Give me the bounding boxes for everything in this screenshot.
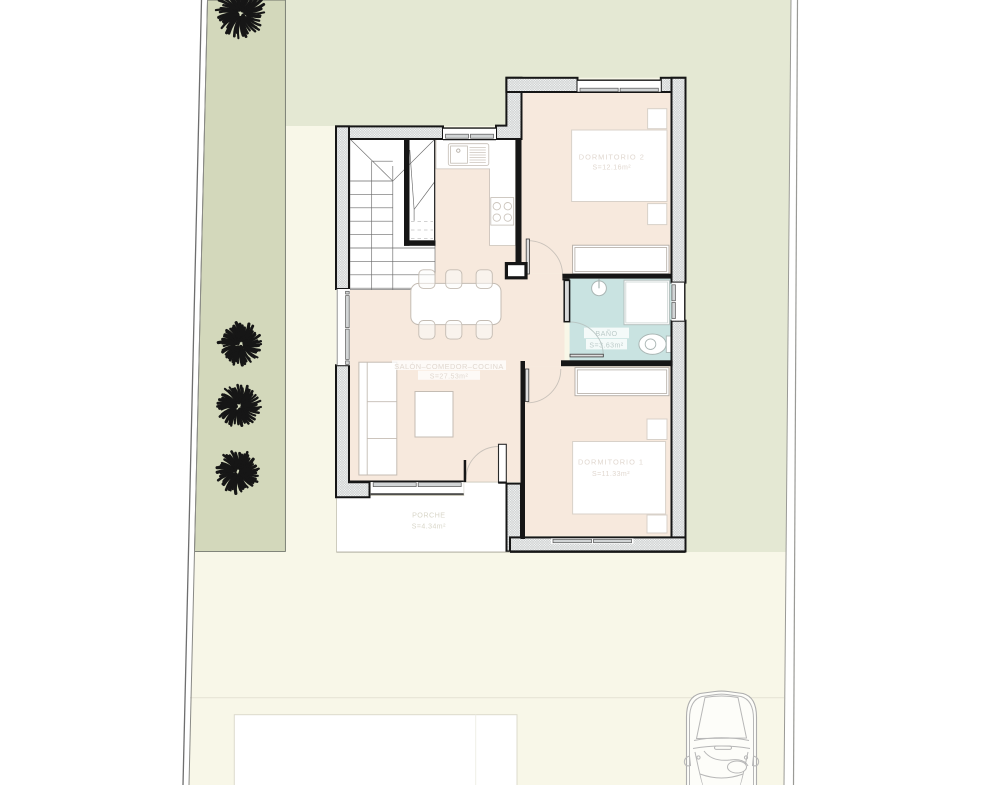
svg-text:S=4.34m²: S=4.34m² xyxy=(412,524,446,531)
svg-text:DORMITORIO 1: DORMITORIO 1 xyxy=(578,458,644,467)
svg-text:S=27.53m²: S=27.53m² xyxy=(430,374,469,381)
svg-text:S=11.33m²: S=11.33m² xyxy=(592,471,630,478)
svg-text:S=3.63m²: S=3.63m² xyxy=(589,343,623,350)
svg-text:PORCHE: PORCHE xyxy=(412,511,445,520)
svg-text:BAÑO: BAÑO xyxy=(595,329,617,338)
svg-text:S=12.16m²: S=12.16m² xyxy=(593,165,632,172)
svg-text:SALÓN–COMEDOR–COCINA: SALÓN–COMEDOR–COCINA xyxy=(394,362,504,371)
svg-text:DORMITORIO 2: DORMITORIO 2 xyxy=(579,153,645,162)
